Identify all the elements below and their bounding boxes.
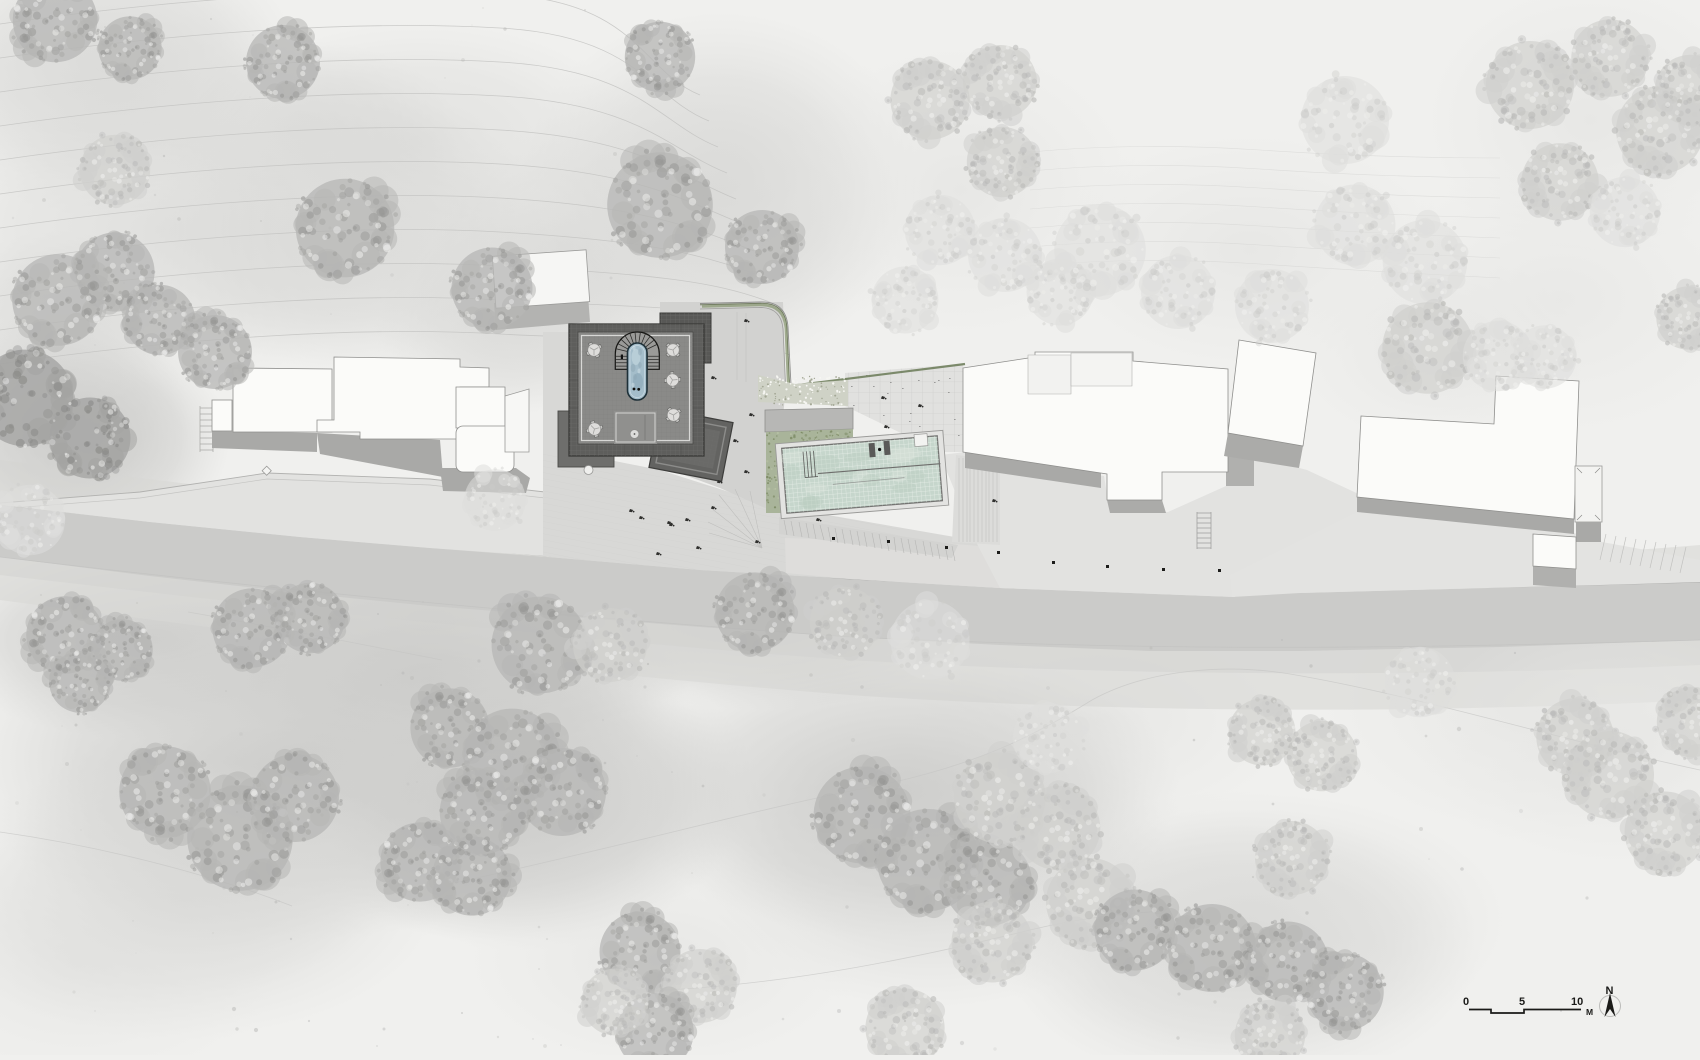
- svg-text:0: 0: [1463, 996, 1469, 1008]
- svg-text:5: 5: [1519, 996, 1525, 1008]
- svg-text:M: M: [1586, 1007, 1593, 1017]
- svg-text:10: 10: [1571, 996, 1583, 1008]
